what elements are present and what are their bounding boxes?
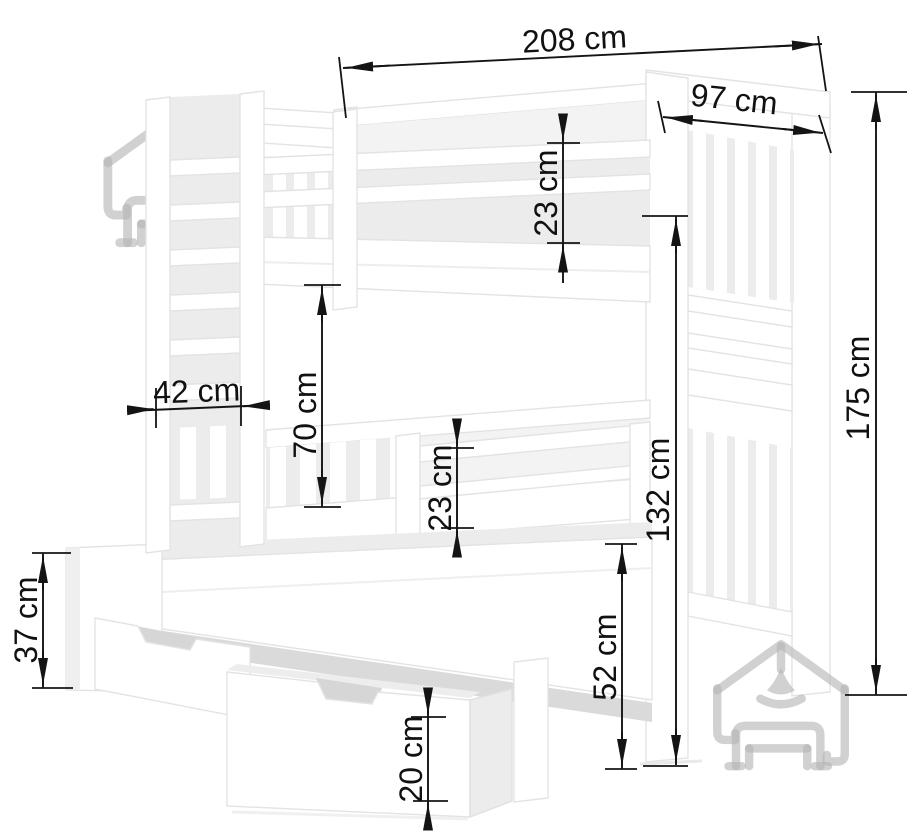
front-right-leg — [514, 658, 548, 802]
ladder-rung — [170, 337, 240, 356]
headboard-back-post — [792, 104, 830, 696]
ladder — [146, 91, 264, 553]
technical-drawing-page: 208 cm 97 cm 23 cm 42 cm — [0, 0, 909, 839]
ladder-post — [240, 91, 264, 547]
dimension-label: 132 cm — [640, 438, 676, 543]
dimension-label: 70 cm — [287, 371, 323, 458]
dimension-label: 23 cm — [422, 444, 458, 531]
drawer-side-panel — [470, 689, 512, 817]
dimension-total-height: 175 cm — [840, 92, 907, 695]
dimension-label: 20 cm — [393, 715, 429, 802]
dimension-label: 208 cm — [521, 18, 628, 59]
ladder-rung — [170, 202, 240, 221]
dimension-label: 97 cm — [689, 77, 779, 122]
ladder-rung — [170, 247, 240, 266]
dimension-label: 52 cm — [587, 613, 623, 700]
ladder-rung — [170, 502, 240, 521]
dimension-trundle-end-height: 37 cm — [8, 553, 73, 688]
headboard-lower-slats — [688, 428, 792, 612]
ladder-lower-slats — [170, 425, 240, 500]
upper-front-post — [333, 109, 357, 310]
ladder-rung — [170, 157, 240, 176]
bunk-bed-dimension-drawing: 208 cm 97 cm 23 cm 42 cm — [0, 0, 909, 839]
ladder-post — [146, 97, 170, 553]
dimension-label: 42 cm — [152, 371, 240, 410]
dimension-label: 37 cm — [8, 576, 44, 663]
headboard-rail — [688, 333, 792, 364]
dimension-label: 175 cm — [840, 336, 876, 441]
headboard-rail — [688, 369, 792, 411]
dimension-label: 23 cm — [528, 149, 564, 236]
headboard-upper-slats — [688, 130, 794, 303]
ladder-rung — [170, 292, 240, 311]
